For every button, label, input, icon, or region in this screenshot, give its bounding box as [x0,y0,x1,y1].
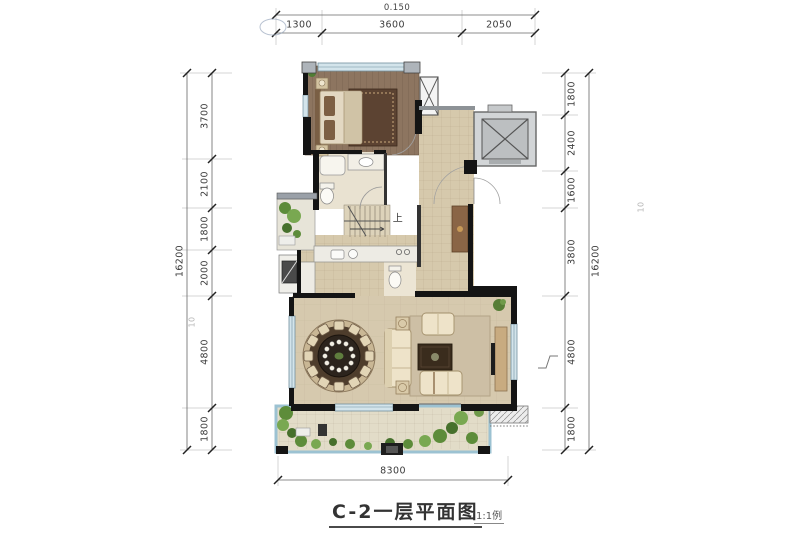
stairs-up-label: 上 [393,210,403,225]
dim-right-5: 4800 [567,339,578,365]
drawing-title: C-2一层平面图 [329,497,482,528]
dim-bottom-total: 8300 [380,466,406,477]
dim-top-2: 3600 [379,20,405,31]
dim-top-total: 0.150 [384,3,410,13]
dim-left-4: 2000 [200,260,211,286]
drawing-scale-note: 1:1例 [474,507,504,524]
dim-top-3: 2050 [486,20,512,31]
dim-left-6: 1800 [200,416,211,442]
grid-label-left: 10 [188,317,197,328]
dim-top-1: 1300 [286,20,312,31]
dim-left-5: 4800 [200,339,211,365]
dim-right-total: 16200 [591,245,602,277]
dim-left-1: 3700 [200,103,211,129]
dim-right-6: 1800 [567,416,578,442]
dim-right-3: 1600 [567,177,578,203]
grid-label-right: 10 [637,202,646,213]
floor-plan-drawing [0,0,800,533]
dim-left-3: 1800 [200,216,211,242]
dim-left-total: 16200 [175,245,186,277]
dim-right-1: 1800 [567,81,578,107]
floor-plan-sheet: 0.150 1300 3600 2050 16200 3700 2100 180… [0,0,800,533]
dim-right-2: 2400 [567,130,578,156]
elevator-shaft [474,105,536,166]
dim-right-4: 3800 [567,239,578,265]
dim-left-2: 2100 [200,171,211,197]
